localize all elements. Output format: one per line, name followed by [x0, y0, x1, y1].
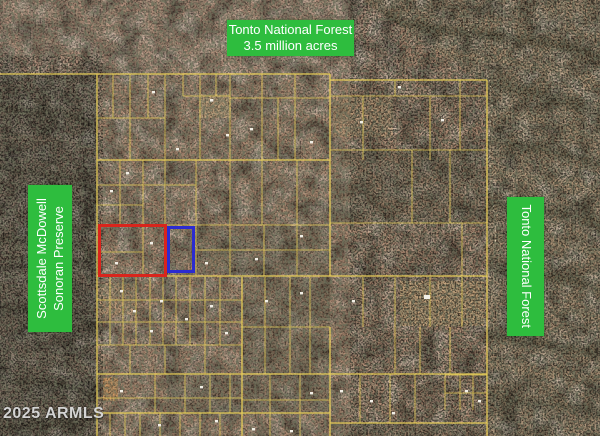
label-line: Tonto National Forest — [229, 22, 353, 39]
label-line: Sonoran Preserve — [50, 198, 67, 319]
label-line: Tonto National Forest — [517, 205, 534, 329]
label-sonoran-preserve-left: Scottsdale McDowell Sonoran Preserve — [28, 185, 72, 332]
label-line: 3.5 million acres — [229, 38, 353, 55]
adjacent-parcel-highlight — [167, 226, 195, 273]
label-line: Scottsdale McDowell — [34, 198, 51, 319]
label-tonto-national-forest-top: Tonto National Forest 3.5 million acres — [227, 20, 354, 56]
subject-parcel-highlight — [98, 224, 167, 277]
copyright-watermark: 2025 ARMLS — [3, 405, 104, 423]
satellite-parcel-map: Tonto National Forest 3.5 million acres … — [0, 0, 600, 436]
label-tonto-national-forest-right: Tonto National Forest — [507, 197, 544, 336]
